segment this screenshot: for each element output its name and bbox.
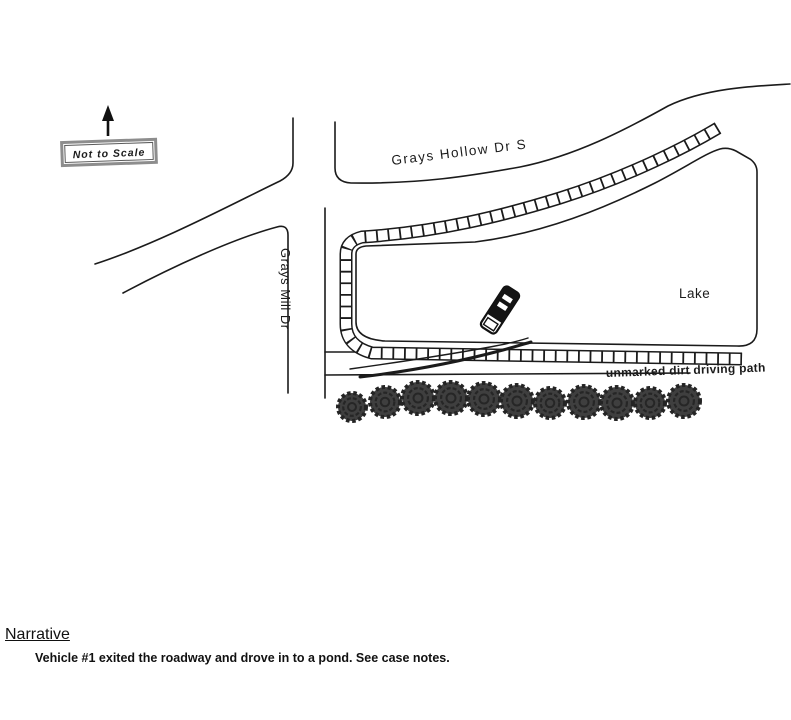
grays-hollow-label: Grays Hollow Dr S <box>391 136 528 168</box>
scanned-crash-report-page: N Not to Scale Grays Hollow Dr S Grays M… <box>0 0 791 720</box>
tree-icon <box>668 385 700 417</box>
crash-diagram: N Not to Scale Grays Hollow Dr S Grays M… <box>0 0 791 720</box>
narrative-section: Narrative Vehicle #1 exited the roadway … <box>5 626 450 665</box>
narrative-heading: Narrative <box>5 626 450 644</box>
tree-icon <box>435 382 467 414</box>
lake-label: Lake <box>679 286 710 301</box>
lake-outline <box>356 148 757 346</box>
tree-row <box>338 382 700 421</box>
tree-icon <box>535 388 565 418</box>
road-edge-grays-mill-west <box>123 226 288 393</box>
tree-icon <box>635 388 665 418</box>
tree-icon <box>402 382 434 414</box>
tree-icon <box>568 386 600 418</box>
scale-box: Not to Scale <box>62 139 157 165</box>
tree-icon <box>370 387 400 417</box>
scale-box-label: Not to Scale <box>73 147 146 162</box>
tree-icon <box>468 383 500 415</box>
tree-icon <box>601 387 633 419</box>
tree-icon <box>501 385 533 417</box>
narrative-body: Vehicle #1 exited the roadway and drove … <box>35 651 450 665</box>
grays-mill-label: Grays Mill Dr <box>278 248 293 330</box>
tree-icon <box>338 393 366 421</box>
